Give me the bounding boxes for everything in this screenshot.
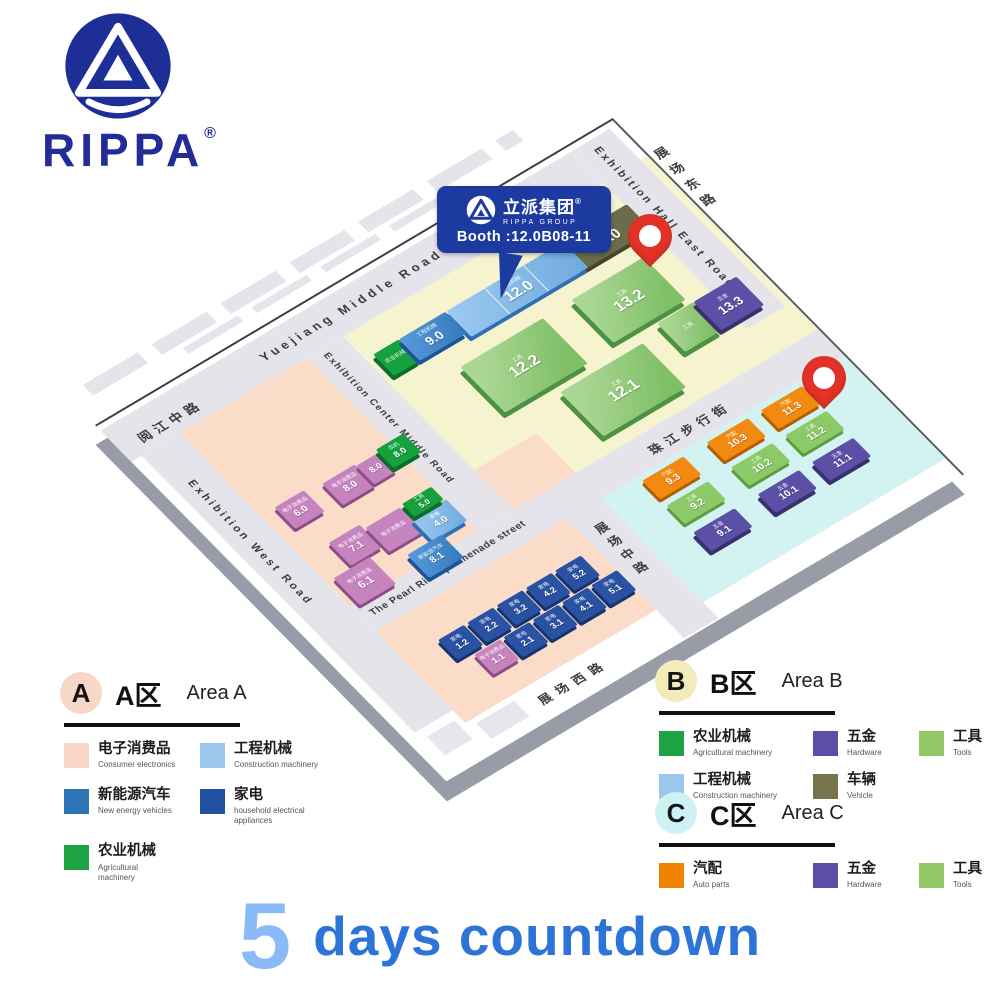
legend-item-tools: 工具Tools [919, 729, 985, 758]
legend-label-cn: 家电 [234, 787, 326, 804]
legend-swatch [659, 731, 684, 756]
legend-b-title-cn: B区 [710, 662, 757, 701]
registered-mark: ® [204, 125, 216, 142]
legend-swatch [64, 845, 89, 870]
callout-booth-number: Booth :12.0B08-11 [445, 229, 603, 245]
legend-swatch [919, 863, 944, 888]
legend-item-agricultural-machinery: 农业机械Agricultural machinery [659, 729, 795, 758]
hall-number: 8.0 [368, 462, 385, 475]
legend-label-cn: 新能源汽车 [98, 787, 172, 804]
legend-area-a: A A区 Area A 电子消费品Consumer electronics工程机… [60, 672, 340, 883]
legend-label-cn: 五金 [847, 729, 882, 746]
legend-label-cn: 五金 [847, 861, 882, 878]
legend-c-circle: C [655, 792, 697, 834]
legend-c-title-en: Area C [782, 802, 844, 825]
brand-name: RIPPA® [42, 126, 272, 173]
legend-label-en: Agricultural machinery [693, 748, 772, 758]
legend-c-rule [659, 843, 835, 847]
legend-label-cn: 农业机械 [98, 843, 176, 860]
hall-category-label: 农业机械 [385, 350, 408, 365]
legend-label-cn: 农业机械 [693, 729, 772, 746]
legend-label-cn: 工程机械 [234, 741, 318, 758]
legend-c-title-cn: C区 [710, 794, 757, 833]
legend-label-en: Tools [953, 748, 982, 758]
legend-label-en: household electrical appliances [234, 806, 326, 826]
legend-label-en: New energy vehicles [98, 806, 172, 816]
legend-area-b: B B区 Area B 农业机械Agricultural machinery五金… [655, 660, 985, 801]
legend-swatch [919, 731, 944, 756]
legend-label-cn: 工具 [953, 861, 982, 878]
legend-swatch [659, 863, 684, 888]
legend-c-items: 汽配Auto parts五金Hardware工具Tools [659, 861, 985, 890]
legend-b-title-en: Area B [782, 670, 843, 693]
legend-item-household-electrical-appliances: 家电household electrical appliances [200, 787, 340, 826]
booth-callout: 立派集团® RIPPA GROUP Booth :12.0B08-11 [437, 186, 611, 253]
legend-label-en: Hardware [847, 880, 882, 890]
hall-category-label: 工具 [682, 322, 696, 332]
legend-a-items: 电子消费品Consumer electronics工程机械Constructio… [64, 741, 340, 883]
legend-a-title-cn: A区 [115, 674, 162, 713]
legend-item-new-energy-vehicles: 新能源汽车New energy vehicles [64, 787, 176, 826]
legend-swatch [200, 789, 225, 814]
legend-swatch [813, 863, 838, 888]
legend-b-circle: B [655, 660, 697, 702]
legend-item-consumer-electronics: 电子消费品Consumer electronics [64, 741, 176, 770]
legend-label-en: Hardware [847, 748, 882, 758]
legend-item-tools: 工具Tools [919, 861, 985, 890]
legend-swatch [64, 789, 89, 814]
callout-company-en: RIPPA GROUP [503, 219, 577, 226]
countdown-number: 5 [239, 894, 291, 979]
legend-item-agricultural-machinery: 农业机械Agricultural machinery [64, 843, 176, 882]
callout-company-cn: 立派集团® [503, 193, 582, 218]
legend-b-items: 农业机械Agricultural machinery五金Hardware工具To… [659, 729, 985, 802]
legend-item-hardware: 五金Hardware [813, 729, 901, 758]
legend-label-cn: 工具 [953, 729, 982, 746]
legend-swatch [813, 731, 838, 756]
legend-b-rule [659, 711, 835, 715]
legend-label-cn: 汽配 [693, 861, 729, 878]
rippa-emblem-icon [62, 10, 174, 122]
legend-swatch [64, 743, 89, 768]
countdown-text: days countdown [313, 904, 761, 968]
legend-label-cn: 车辆 [847, 772, 876, 789]
legend-label-en: Construction machinery [234, 760, 318, 770]
legend-label-cn: 工程机械 [693, 772, 777, 789]
legend-swatch [200, 743, 225, 768]
rippa-logo: RIPPA® [42, 10, 272, 173]
legend-label-en: Tools [953, 880, 982, 890]
legend-item-auto-parts: 汽配Auto parts [659, 861, 795, 890]
legend-area-c: C C区 Area C 汽配Auto parts五金Hardware工具Tool… [655, 792, 985, 890]
legend-label-en: Auto parts [693, 880, 729, 890]
legend-label-cn: 电子消费品 [98, 741, 175, 758]
countdown-banner: 5 days countdown [0, 894, 1000, 979]
legend-item-construction-machinery: 工程机械Construction machinery [200, 741, 340, 770]
legend-a-circle: A [60, 672, 102, 714]
legend-label-en: Agricultural machinery [98, 863, 176, 883]
hall-category-label: 电子消费品 [381, 521, 409, 539]
legend-label-en: Consumer electronics [98, 760, 175, 770]
legend-a-rule [64, 723, 240, 727]
legend-a-title-en: Area A [187, 682, 247, 705]
legend-item-hardware: 五金Hardware [813, 861, 901, 890]
callout-logo-icon [466, 195, 496, 225]
